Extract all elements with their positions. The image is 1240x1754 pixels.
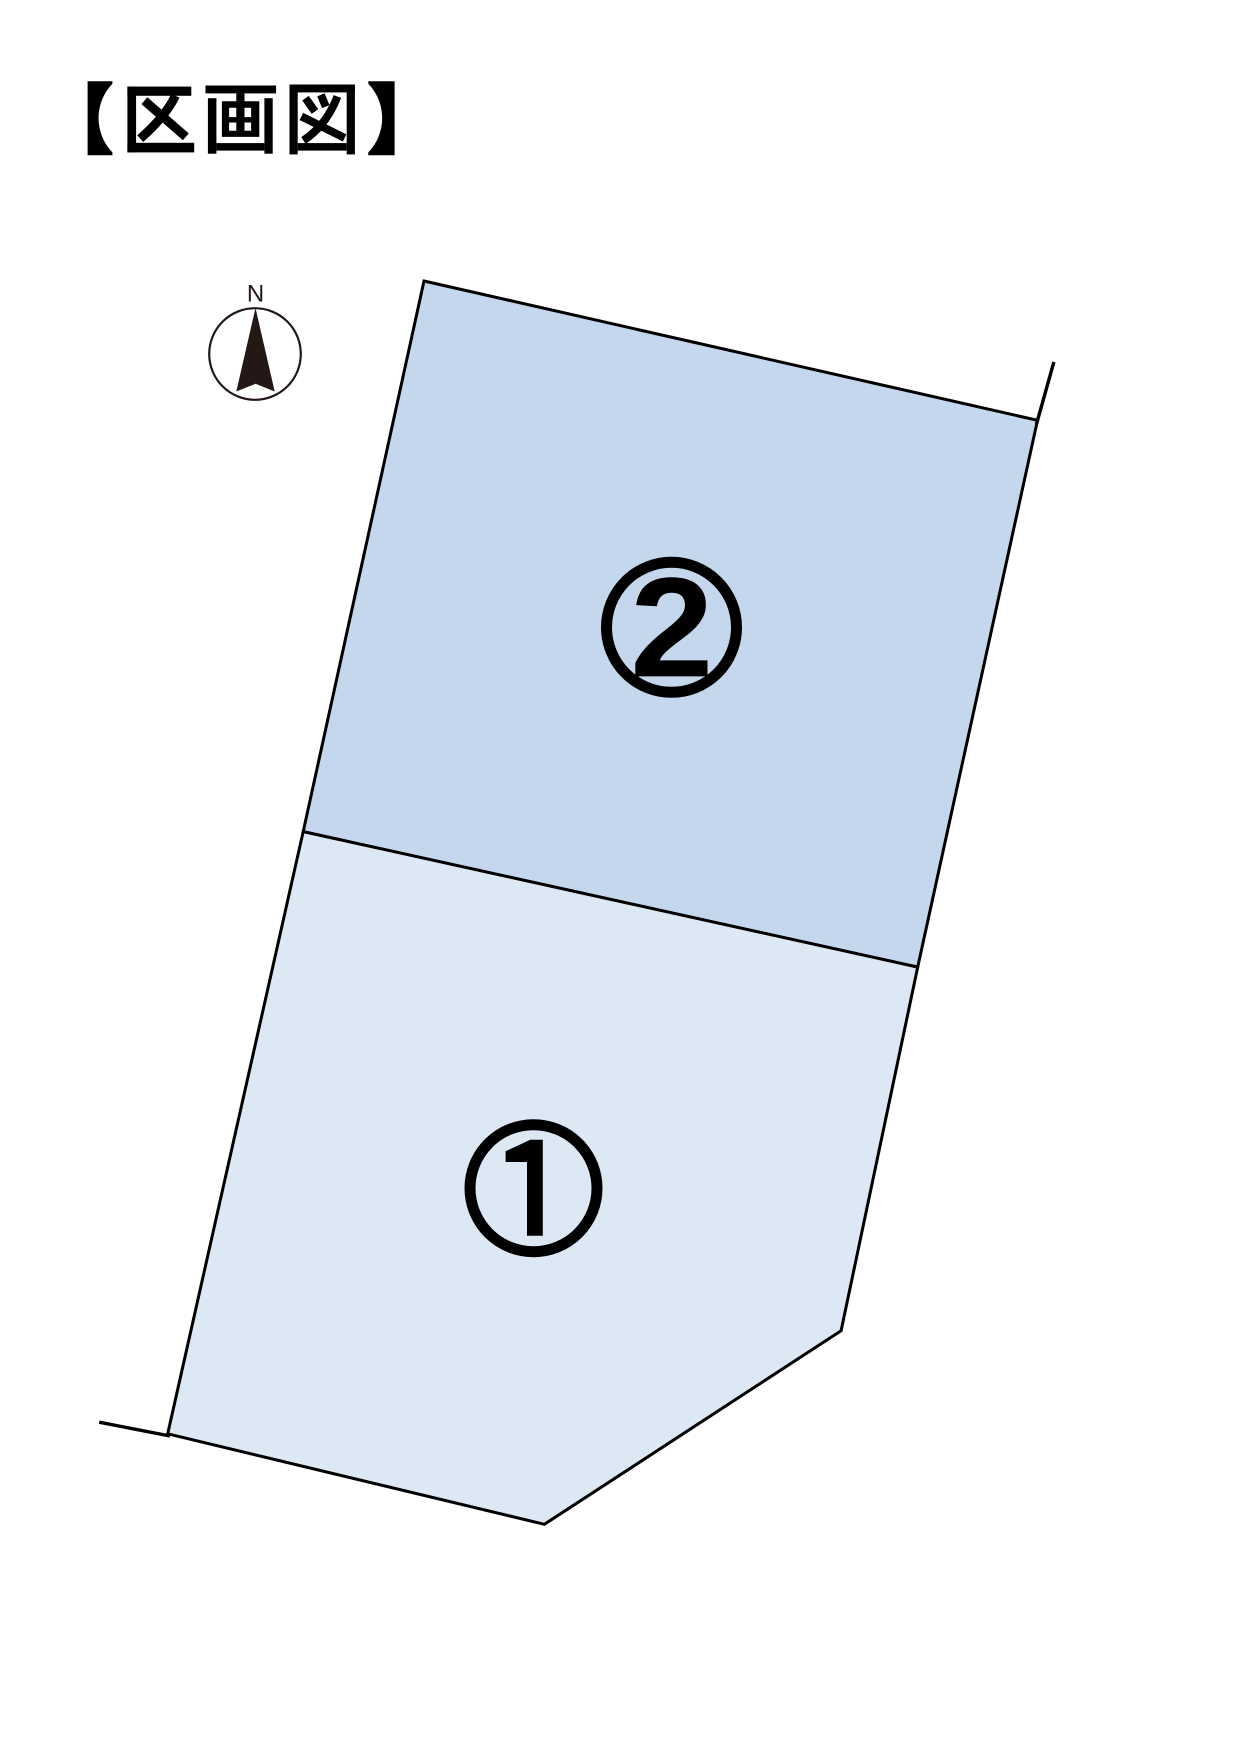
- svg-text:N: N: [247, 281, 264, 308]
- svg-text:2: 2: [630, 548, 713, 707]
